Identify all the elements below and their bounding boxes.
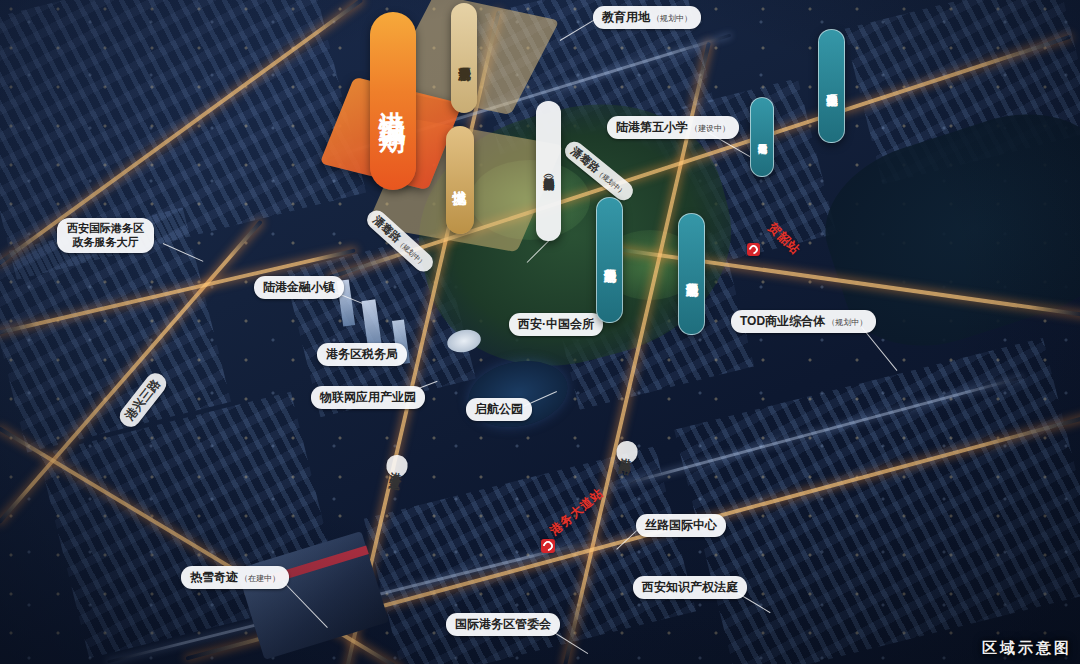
poi-status: （规划中）: [827, 318, 867, 327]
poi-label: 丝路国际中心: [645, 518, 717, 532]
poi-label: 热雪奇迹: [190, 570, 238, 584]
poi-finance-town: 陆港金融小镇: [254, 276, 344, 299]
metro-logo-icon: [747, 243, 760, 256]
poi-label: 西安·中国会所: [518, 317, 594, 331]
poi-label: TOD商业综合体: [740, 314, 825, 328]
cr-new-project-badge: 华润置地新项目: [451, 3, 477, 113]
poi-snow-world: 热雪奇迹（在建中）: [181, 566, 289, 589]
poi-label: 陆港第五小学: [616, 120, 688, 134]
poi-admin-committee: 国际港务区管委会: [446, 613, 560, 636]
poi-ip-court: 西安知识产权法庭: [633, 576, 747, 599]
road-label: 港兴二路: [620, 447, 635, 457]
axis-park-badge: 港务中轴公园（三期） （建设中）: [536, 101, 561, 241]
poi-education-land: 教育用地（规划中）: [593, 6, 701, 29]
poi-tax-bureau: 港务区税务局: [317, 343, 407, 366]
poi-label: 启航公园: [475, 402, 523, 416]
poi-silk-road-intl-center: 丝路国际中心: [636, 514, 726, 537]
poi-status: （规划中）: [652, 14, 692, 23]
poi-status: （建设中）: [690, 124, 730, 133]
poi-label: 教育用地: [602, 10, 650, 24]
poi-qihang-park: 启航公园: [466, 398, 532, 421]
map-caption-label: 区域示意图: [982, 639, 1072, 656]
poi-tod-commercial-complex: TOD商业综合体（规划中）: [731, 310, 876, 333]
poi-label: 国际港务区管委会: [455, 617, 551, 631]
gangyuecheng-badge: 港悦城: [446, 126, 474, 234]
poi-label: 物联网应用产业园: [320, 390, 416, 404]
poi-label: 陆港金融小镇: [263, 280, 335, 294]
poi-label: 西安知识产权法庭: [642, 580, 738, 594]
poi-label: 港务区税务局: [326, 347, 398, 361]
metro-logo-icon: [541, 539, 555, 553]
map-caption: 区域示意图: [982, 639, 1072, 658]
cr-residential-badge-1: 华润置地住宅项目: [818, 29, 845, 143]
main-project-badge-label: 港悦城二期: [376, 91, 411, 111]
poi-status: （在建中）: [240, 574, 280, 583]
main-project-badge: 港悦城二期: [370, 12, 416, 190]
poi-gov-service-hall: 西安国际港务区 政务服务大厅: [57, 218, 154, 253]
poi-china-club: 西安·中国会所: [509, 313, 603, 336]
poi-label-line2: 政务服务大厅: [73, 236, 139, 248]
cr-residential-badge-2: 华润置地住宅项目: [750, 97, 774, 177]
poi-label-line1: 西安国际港务区: [67, 222, 144, 234]
cr-residential-badge-3: 华润置地住宅项目: [596, 197, 623, 323]
map-canvas: 港悦城二期 华润置地新项目 港悦城 港务中轴公园（三期） （建设中） 华润置地住…: [0, 0, 1080, 664]
poi-lugang-fifth-school: 陆港第五小学（建设中）: [607, 116, 739, 139]
road-label: 港务大道: [390, 461, 405, 471]
cr-residential-badge-4: 华润置地住宅项目: [678, 213, 705, 335]
poi-iot-industry-park: 物联网应用产业园: [311, 386, 425, 409]
